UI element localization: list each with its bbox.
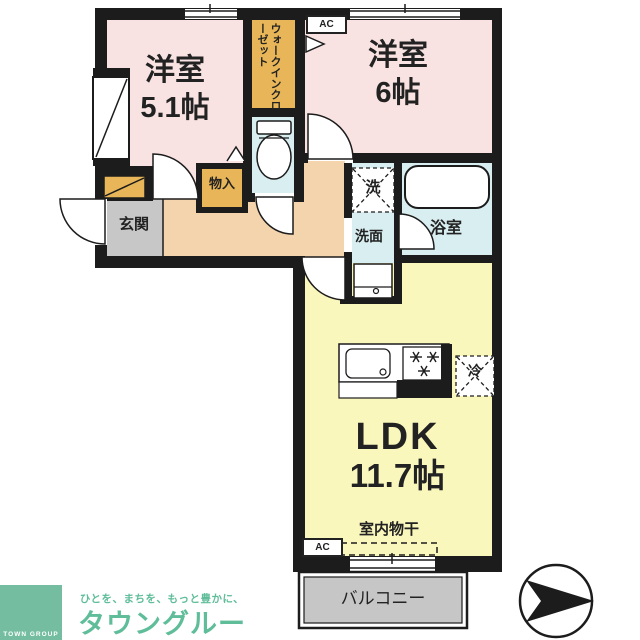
washer-label: 洗: [352, 180, 394, 196]
bedroom2-size-label: 6帖: [318, 78, 478, 108]
balcony-label: バルコニー: [305, 590, 461, 608]
wall-left-lower: [293, 256, 305, 572]
door-entrance: [60, 199, 105, 244]
kitchen-stove: [403, 347, 443, 380]
hallway-area: [163, 197, 345, 258]
bathroom-label: 浴室: [408, 221, 484, 238]
hallway-area2: [303, 161, 345, 197]
fridge-label: 冷: [456, 364, 494, 379]
bedroom1-name-label: 洋室: [105, 55, 245, 87]
floorplan-page: 洋室 5.1帖 洋室 6帖 ウォークインクローゼット AC AC 物入 玄関 洗…: [0, 0, 640, 640]
kitchen-faucet: [380, 369, 386, 375]
ldk-area: [303, 263, 492, 556]
wall-bottom-left-block: [95, 256, 305, 268]
toilet-tank: [257, 121, 291, 134]
wall-right: [492, 8, 502, 572]
toilet-bowl: [257, 135, 291, 179]
washbasin: [354, 264, 392, 298]
ac-label-bedroom2: AC: [306, 15, 347, 34]
indoor-drying-label: 室内物干: [328, 522, 450, 538]
storage-label: 物入: [200, 177, 244, 191]
washbasin-faucet: [374, 289, 379, 294]
washroom-label: 洗面: [342, 229, 396, 244]
wic-label: ウォークインクローゼット: [255, 23, 281, 111]
bedroom1-size-label: 5.1帖: [105, 93, 245, 123]
brand-company-name: タウングループ: [68, 602, 256, 640]
kitchen-counter-edge: [339, 382, 397, 398]
kitchen-wall-right: [441, 344, 452, 398]
bedroom2-name-label: 洋室: [318, 40, 478, 72]
compass: [520, 565, 594, 637]
ldk-size-label: 11.7帖: [320, 459, 475, 494]
wall-bath-bottom: [402, 255, 502, 263]
bathtub: [405, 166, 489, 208]
wall-shoebox-right: [145, 168, 153, 198]
wall-bed2-bottom-b: [353, 153, 502, 163]
entrance-label: 玄関: [104, 217, 164, 233]
logo-town-group-text: TOWN GROUP: [0, 631, 62, 638]
ac-label-ldk: AC: [302, 538, 343, 557]
wall-shoebox-top: [97, 166, 153, 176]
wall-bed2-bottom-a: [295, 153, 308, 163]
town-group-logo: TOWN GROUP: [0, 585, 62, 640]
ldk-name-label: LDK: [320, 418, 475, 458]
kitchen: [339, 344, 452, 398]
